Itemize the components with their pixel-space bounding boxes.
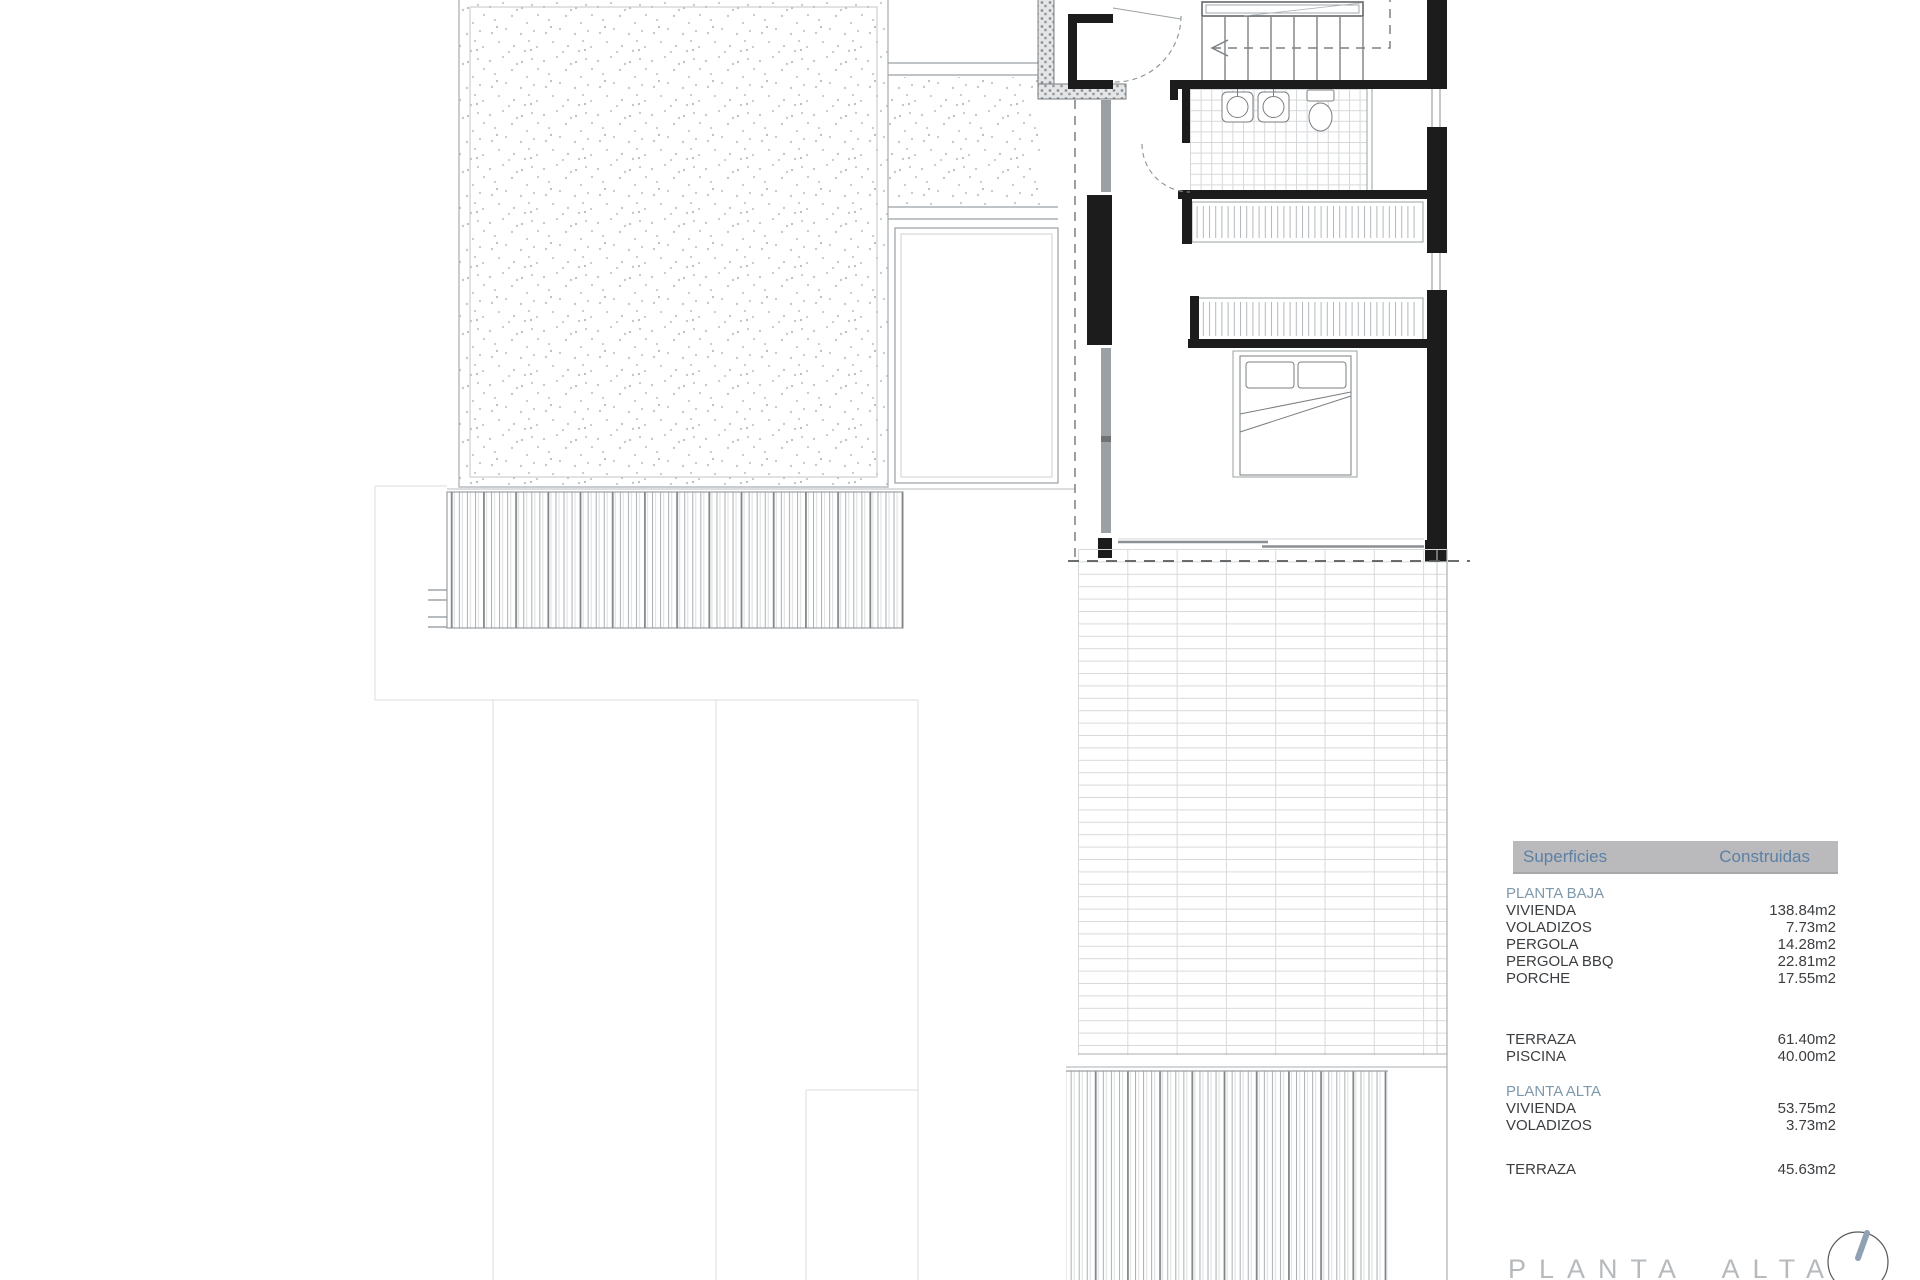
table-row: VOLADIZOS7.73m2 [1506, 919, 1838, 936]
sliding-door [1118, 539, 1424, 547]
flat-roof-area [459, 0, 888, 487]
table-row: TERRAZA61.40m2 [1506, 1031, 1838, 1048]
side-steps [428, 590, 447, 627]
table-row: VOLADIZOS3.73m2 [1506, 1117, 1838, 1134]
toilet [1307, 90, 1334, 131]
table-section: PLANTA ALTA [1506, 1083, 1838, 1100]
terrace-louvers [1066, 1071, 1388, 1280]
table-row: PERGOLA BBQ22.81m2 [1506, 953, 1838, 970]
sink [1222, 89, 1253, 122]
table-header-col1: Superficies [1523, 847, 1607, 867]
bed [1233, 351, 1357, 477]
plan-title: PLANTA ALTA [1508, 1254, 1837, 1280]
surfaces-table: Superficies Construidas PLANTA BAJA VIVI… [1506, 841, 1838, 1178]
table-row: PERGOLA14.28m2 [1506, 936, 1838, 953]
sink [1258, 89, 1289, 122]
floor-plan-sheet: Superficies Construidas PLANTA BAJA VIVI… [0, 0, 1920, 1280]
table-row: VIVIENDA138.84m2 [1506, 902, 1838, 919]
wardrobes [1192, 202, 1423, 340]
porch-outline [895, 228, 1058, 483]
pillow [1246, 362, 1294, 388]
entry-door-leaf [1113, 8, 1181, 19]
table-header-col2: Construidas [1719, 847, 1810, 867]
pillow [1298, 362, 1346, 388]
table-header: Superficies Construidas [1513, 841, 1838, 874]
shower-partition [1367, 89, 1372, 190]
bathroom [1190, 89, 1372, 190]
table-row: PORCHE17.55m2 [1506, 970, 1838, 987]
door-swing-arcs [1114, 16, 1190, 192]
table-rows: PLANTA BAJA VIVIENDA138.84m2 VOLADIZOS7.… [1506, 885, 1838, 1178]
pergola-louvers [447, 492, 903, 628]
blanket-fold [1240, 392, 1351, 432]
table-row: VIVIENDA53.75m2 [1506, 1100, 1838, 1117]
table-row: PISCINA40.00m2 [1506, 1048, 1838, 1065]
pergola-bbq-roof [888, 63, 1058, 219]
table-section: PLANTA BAJA [1506, 885, 1838, 902]
table-row: TERRAZA45.63m2 [1506, 1161, 1838, 1178]
